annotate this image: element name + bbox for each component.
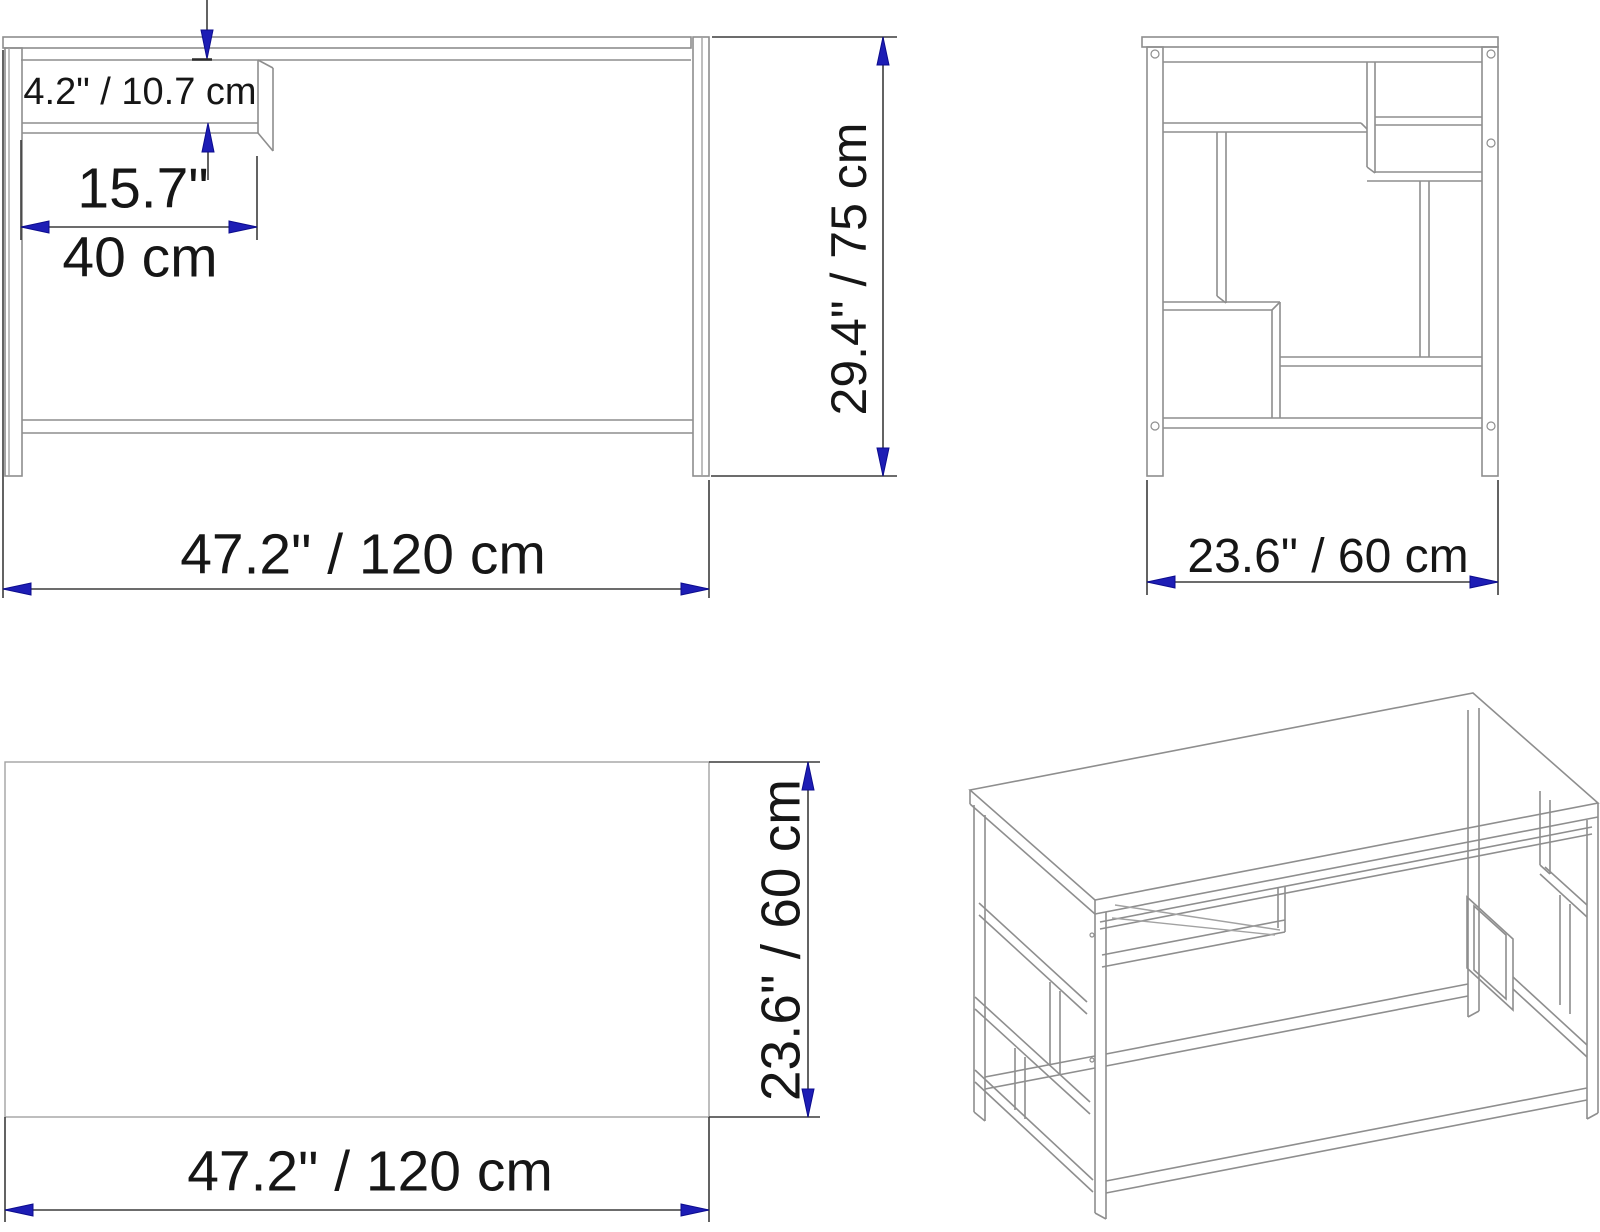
front-overall-width-label: 47.2" / 120 cm	[180, 527, 546, 584]
top-overall-width-label: 47.2" / 120 cm	[187, 1144, 553, 1201]
drawing-canvas: 4.2" / 10.7 cm 15.7" 40 cm 47.2" / 120 c…	[0, 0, 1600, 1232]
front-shelf-gap-label: 4.2" / 10.7 cm	[23, 73, 256, 111]
front-shelf-width-inches-label: 15.7"	[77, 161, 208, 218]
side-view-drawing	[1142, 37, 1498, 476]
side-overall-depth-label: 23.6" / 60 cm	[1187, 533, 1468, 581]
perspective-view-drawing	[970, 693, 1598, 1219]
top-view-drawing	[5, 762, 709, 1117]
front-overall-height-label: 29.4" / 75 cm	[824, 123, 874, 416]
front-shelf-width-cm-label: 40 cm	[62, 230, 217, 287]
top-overall-depth-label: 23.6" / 60 cm	[754, 779, 809, 1101]
